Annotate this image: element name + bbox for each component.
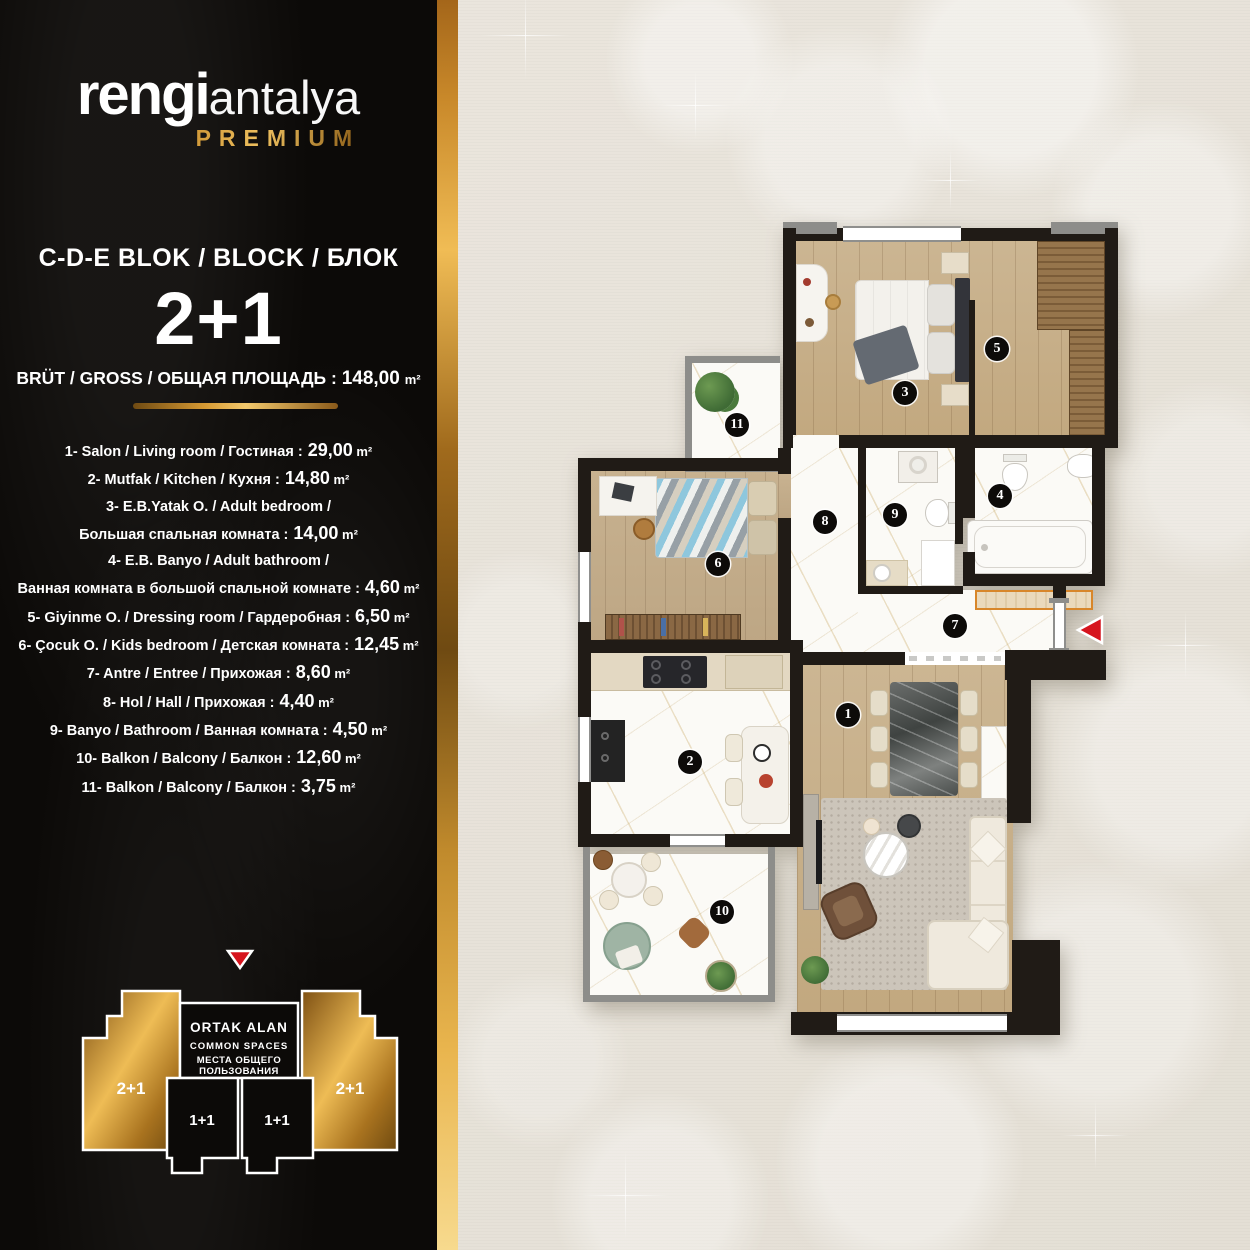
brand-name-light: antalya	[209, 74, 361, 121]
room-area-unit: m²	[400, 581, 420, 596]
common-area-label-en: COMMON SPACES	[190, 1041, 288, 1052]
plant	[695, 372, 735, 412]
room-label: Ванная комната в большой спальной комнат…	[18, 581, 360, 597]
toilet-tank	[1003, 454, 1027, 462]
brand-name-bold: rengi	[77, 66, 209, 124]
kids-bed-pillow	[748, 520, 777, 555]
common-area-label-ru1: МЕСТА ОБЩЕГО	[197, 1055, 281, 1066]
block-left-2plus1	[83, 991, 180, 1150]
room-area-value: 12,60	[291, 747, 341, 767]
plant	[705, 960, 737, 992]
bed-pillow	[927, 332, 955, 374]
tv	[816, 820, 822, 884]
bathtub-drain	[981, 544, 988, 551]
tall-cabinet-oven	[589, 720, 625, 782]
room-list-item: Большая спальная комната : 14,00 m²	[0, 520, 437, 548]
wall-segment	[955, 448, 963, 544]
decor-item	[803, 278, 811, 286]
locator-arrow-icon	[228, 951, 252, 968]
stove-burner	[681, 660, 691, 670]
nightstand	[941, 252, 969, 274]
plant	[801, 956, 829, 984]
brand-premium-label: PREMIUM	[77, 127, 360, 150]
window	[578, 552, 591, 622]
room-list-item: 1- Salon / Living room / Гостиная : 29,0…	[0, 437, 437, 465]
common-area-label-ru2: ПОЛЬЗОВАНИЯ	[199, 1066, 279, 1077]
sliding-door-track	[905, 652, 1005, 665]
window	[837, 1014, 1007, 1032]
radiator-bench	[975, 590, 1093, 610]
chair	[960, 762, 978, 788]
room-area-value: 4,40	[274, 691, 314, 711]
room-number-badge: 10	[710, 900, 734, 924]
unit-type-title: 2+1	[0, 276, 437, 361]
right-unit-label: 2+1	[336, 1079, 365, 1098]
wall-segment	[583, 847, 590, 1002]
room-area-unit: m²	[399, 638, 419, 653]
room-list: 1- Salon / Living room / Гостиная : 29,0…	[0, 437, 437, 801]
common-area-label-tr: ORTAK ALAN	[190, 1020, 288, 1035]
vanity-desk	[796, 264, 828, 342]
wall-segment	[685, 356, 692, 472]
room-number-badge: 3	[893, 381, 917, 405]
wall-segment	[1049, 598, 1069, 603]
dining-table-marble	[890, 682, 958, 796]
stove-burner	[681, 674, 691, 684]
wall-segment	[803, 652, 907, 665]
wardrobe	[1037, 241, 1105, 330]
floor-hall-8	[791, 448, 858, 654]
door-opening	[793, 435, 839, 448]
gross-area-value: 148,00	[342, 368, 400, 389]
fruit-bowl	[759, 774, 773, 788]
room-label: 10- Balkon / Balcony / Балкон :	[76, 751, 291, 767]
stove-burner	[651, 660, 661, 670]
inner-right-unit-label: 1+1	[264, 1112, 289, 1129]
patio-chair	[641, 852, 661, 872]
wall-segment	[1005, 650, 1106, 680]
wall-segment	[858, 586, 963, 594]
gross-area-unit: m²	[405, 372, 421, 387]
room-number-badge: 11	[725, 413, 749, 437]
room-list-item: Ванная комната в большой спальной комнат…	[0, 574, 437, 602]
room-area-value: 3,75	[296, 776, 336, 796]
wardrobe-slatted	[1069, 330, 1105, 436]
room-list-item: 2- Mutfak / Kitchen / Кухня : 14,80 m²	[0, 465, 437, 493]
patio-chair	[593, 850, 613, 870]
entry-door-opening	[1053, 602, 1066, 650]
wall-segment	[583, 995, 775, 1002]
room-area-unit: m²	[390, 610, 410, 625]
book	[703, 618, 708, 636]
room-area-value: 29,00	[303, 440, 353, 460]
room-area-value: 8,60	[291, 662, 331, 682]
wall-segment	[685, 356, 780, 363]
room-number-badge: 6	[706, 552, 730, 576]
room-list-item: 5- Giyinme O. / Dressing room / Гардероб…	[0, 603, 437, 631]
wall-segment	[783, 228, 796, 448]
wall-segment	[790, 640, 803, 847]
wall-segment	[578, 458, 788, 471]
chair	[960, 726, 978, 752]
patio-chair	[643, 886, 663, 906]
room-label: Большая спальная комната :	[79, 527, 288, 543]
room-area-value: 4,50	[328, 719, 368, 739]
sink	[873, 564, 891, 582]
wall-segment	[768, 847, 775, 1002]
gold-edge-strip	[437, 0, 458, 1250]
room-list-item: 8- Hol / Hall / Прихожая : 4,40 m²	[0, 688, 437, 716]
gross-label: BRÜT / GROSS / ОБЩАЯ ПЛОЩАДЬ :	[16, 368, 336, 388]
open-door	[921, 540, 955, 586]
block-title: C-D-E BLOK / BLOCK / БЛОК	[0, 244, 437, 273]
wall-segment	[858, 448, 866, 594]
room-number-badge: 8	[813, 510, 837, 534]
room-number-badge: 7	[943, 614, 967, 638]
bed-headboard	[955, 278, 970, 382]
door-opening	[778, 474, 791, 518]
dresser-bookshelf	[605, 614, 741, 640]
room-number-badge: 4	[988, 484, 1012, 508]
chair	[870, 726, 888, 752]
chair	[960, 690, 978, 716]
stove-burner	[651, 674, 661, 684]
bathtub-inner	[974, 526, 1086, 568]
room-area-value: 14,00	[288, 523, 338, 543]
room-label: 1- Salon / Living room / Гостиная :	[65, 444, 303, 460]
oven-knob	[601, 732, 609, 740]
room-area-unit: m²	[353, 444, 373, 459]
plate	[753, 744, 771, 762]
room-area-unit: m²	[368, 723, 388, 738]
washer-door	[909, 456, 927, 474]
room-area-value: 14,80	[280, 468, 330, 488]
room-area-unit: m²	[330, 472, 350, 487]
decor-tray	[825, 294, 841, 310]
room-area-unit: m²	[341, 751, 361, 766]
room-list-item: 3- E.B.Yatak O. / Adult bedroom /	[0, 494, 437, 520]
sideboard	[981, 726, 1007, 804]
gold-divider	[133, 403, 338, 409]
room-number-badge: 2	[678, 750, 702, 774]
window	[843, 226, 961, 242]
wall-segment	[1007, 680, 1031, 823]
room-label: 11- Balkon / Balcony / Балкон :	[82, 780, 296, 796]
info-panel: rengiantalya PREMIUM C-D-E BLOK / BLOCK …	[0, 0, 437, 1250]
wall-segment	[1105, 228, 1118, 448]
wall-segment	[578, 640, 790, 653]
room-area-unit: m²	[315, 695, 335, 710]
patio-chair	[599, 890, 619, 910]
room-area-unit: m²	[331, 666, 351, 681]
wall-segment	[1092, 435, 1105, 586]
room-list-item: 6- Çocuk O. / Kids bedroom / Детская ком…	[0, 631, 437, 659]
room-number-badge: 5	[985, 337, 1009, 361]
book	[619, 618, 624, 636]
stool	[633, 518, 655, 540]
room-number-badge: 9	[883, 503, 907, 527]
room-label: 6- Çocuk O. / Kids bedroom / Детская ком…	[18, 638, 349, 654]
bed-pillow	[927, 284, 955, 326]
room-area-value: 4,60	[360, 577, 400, 597]
room-label: 9- Banyo / Bathroom / Ванная комната :	[50, 723, 328, 739]
kitchen-appliance	[725, 655, 783, 689]
kids-bed-blanket	[655, 478, 748, 558]
oven-knob	[601, 754, 609, 762]
room-number-badge: 1	[836, 703, 860, 727]
entrance-arrow-icon	[1075, 614, 1105, 646]
room-area-value: 12,45	[349, 634, 399, 654]
chair	[725, 734, 743, 762]
room-list-item: 9- Banyo / Bathroom / Ванная комната : 4…	[0, 716, 437, 744]
room-area-unit: m²	[338, 527, 358, 542]
chair	[725, 778, 743, 806]
room-label: 7- Antre / Entree / Прихожая :	[87, 666, 291, 682]
brand-logo: rengiantalya PREMIUM	[0, 66, 437, 151]
decor-item	[805, 318, 814, 327]
left-unit-label: 2+1	[117, 1079, 146, 1098]
coffee-table-small	[897, 814, 921, 838]
room-label: 5- Giyinme O. / Dressing room / Гардероб…	[27, 610, 350, 626]
coffee-table-marble	[863, 832, 909, 878]
block-position-diagram: ORTAK ALAN COMMON SPACES МЕСТА ОБЩЕГО ПО…	[70, 943, 410, 1188]
room-label: 8- Hol / Hall / Прихожая :	[103, 695, 274, 711]
block-right-2plus1	[302, 991, 397, 1150]
kids-bed-pillow	[748, 481, 777, 516]
room-list-item: 10- Balkon / Balcony / Балкон : 12,60 m²	[0, 744, 437, 772]
room-list-item: 11- Balkon / Balcony / Балкон : 3,75 m²	[0, 773, 437, 801]
room-list-item: 7- Antre / Entree / Прихожая : 8,60 m²	[0, 659, 437, 687]
room-label: 3- E.B.Yatak O. / Adult bedroom /	[106, 499, 331, 515]
wall-segment	[969, 300, 975, 448]
book	[661, 618, 666, 636]
chair	[870, 762, 888, 788]
room-area-unit: m²	[336, 780, 356, 795]
brochure-page: rengiantalya PREMIUM C-D-E BLOK / BLOCK …	[0, 0, 1250, 1250]
wall-segment	[963, 448, 975, 518]
wall-segment	[1012, 940, 1060, 1012]
floor-plan: 1234567891011	[575, 222, 1145, 1044]
pouf	[863, 818, 880, 835]
room-label: 4- E.B. Banyo / Adult bathroom /	[108, 553, 329, 569]
room-list-item: 4- E.B. Banyo / Adult bathroom /	[0, 548, 437, 574]
room-label: 2- Mutfak / Kitchen / Кухня :	[88, 472, 280, 488]
gross-area-line: BRÜT / GROSS / ОБЩАЯ ПЛОЩАДЬ : 148,00 m²	[0, 368, 437, 390]
balcony-door	[670, 834, 725, 847]
chair	[870, 690, 888, 716]
window	[578, 717, 591, 782]
room-area-value: 6,50	[350, 606, 390, 626]
inner-left-unit-label: 1+1	[189, 1112, 214, 1129]
toilet	[925, 499, 949, 527]
wall-segment	[963, 574, 1105, 586]
nightstand	[941, 384, 969, 406]
